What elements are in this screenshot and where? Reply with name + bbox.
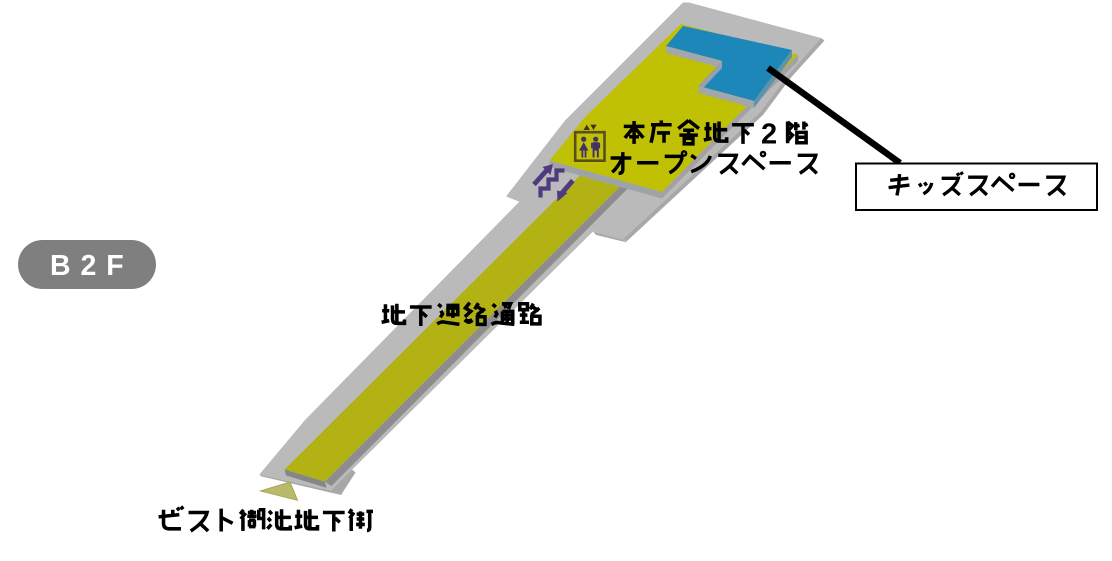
- svg-text:2: 2: [761, 119, 777, 151]
- svg-text:B 2 F: B 2 F: [50, 250, 125, 282]
